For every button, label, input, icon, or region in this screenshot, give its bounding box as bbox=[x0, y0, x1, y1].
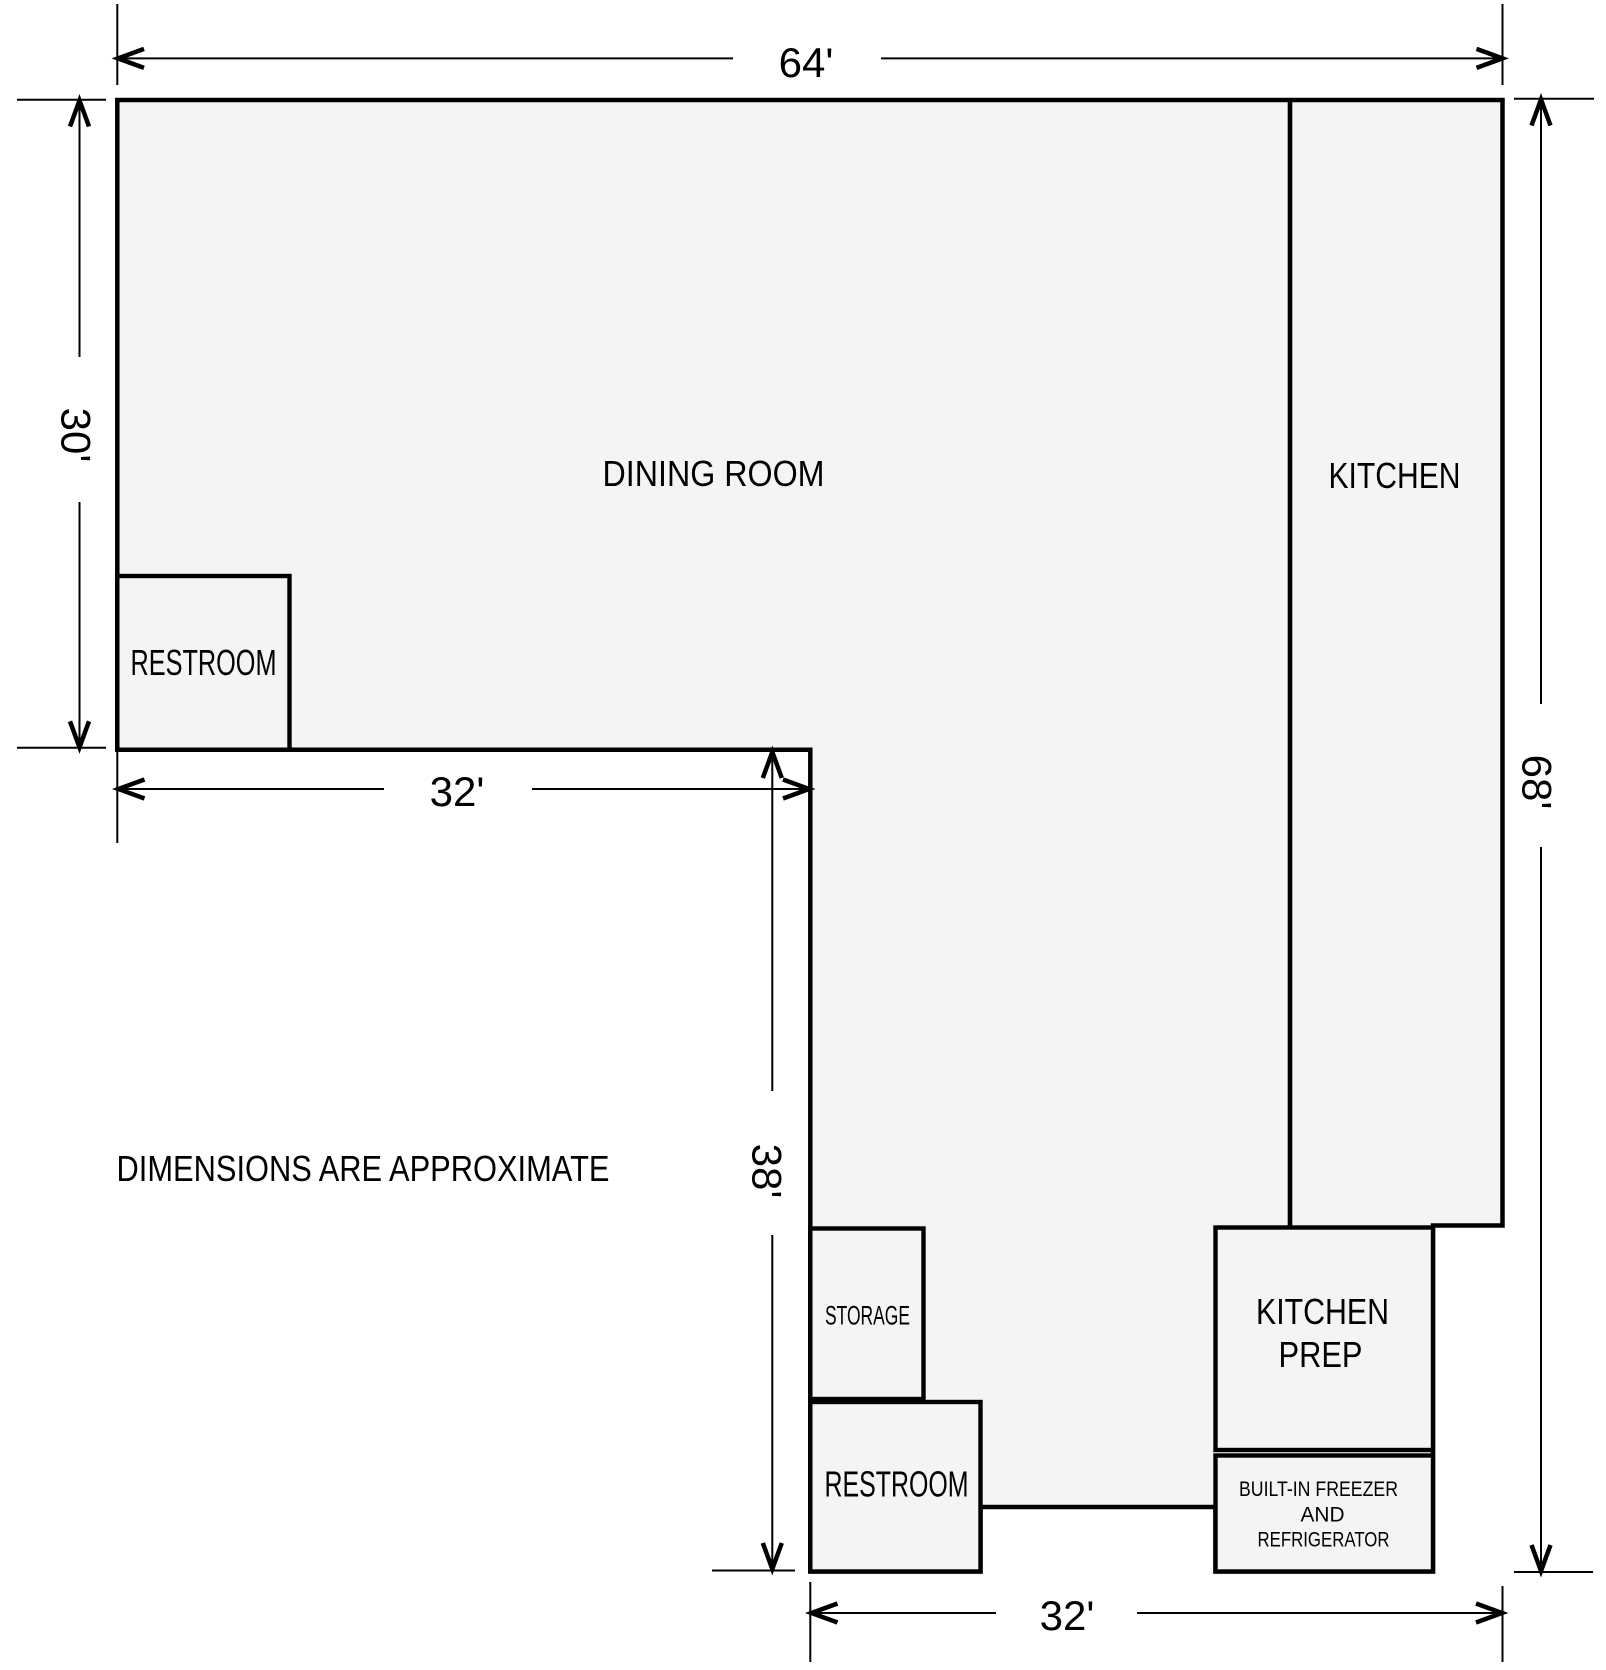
svg-text:DIMENSIONS ARE APPROXIMATE: DIMENSIONS ARE APPROXIMATE bbox=[117, 1148, 610, 1189]
svg-text:64': 64' bbox=[779, 39, 834, 86]
svg-text:REFRIGERATOR: REFRIGERATOR bbox=[1258, 1528, 1390, 1552]
svg-text:PREP: PREP bbox=[1279, 1334, 1363, 1375]
svg-text:38': 38' bbox=[744, 1144, 791, 1199]
svg-text:STORAGE: STORAGE bbox=[825, 1301, 910, 1331]
svg-text:KITCHEN: KITCHEN bbox=[1256, 1291, 1389, 1332]
svg-text:BUILT-IN FREEZER: BUILT-IN FREEZER bbox=[1239, 1477, 1398, 1501]
svg-text:32': 32' bbox=[1040, 1592, 1095, 1639]
svg-text:AND: AND bbox=[1301, 1503, 1345, 1527]
svg-text:DINING ROOM: DINING ROOM bbox=[603, 453, 825, 494]
svg-text:32': 32' bbox=[430, 768, 485, 815]
svg-text:RESTROOM: RESTROOM bbox=[131, 642, 277, 683]
svg-text:RESTROOM: RESTROOM bbox=[825, 1464, 969, 1505]
svg-text:30': 30' bbox=[53, 408, 100, 463]
svg-text:KITCHEN: KITCHEN bbox=[1329, 455, 1461, 496]
svg-text:68': 68' bbox=[1514, 755, 1561, 810]
